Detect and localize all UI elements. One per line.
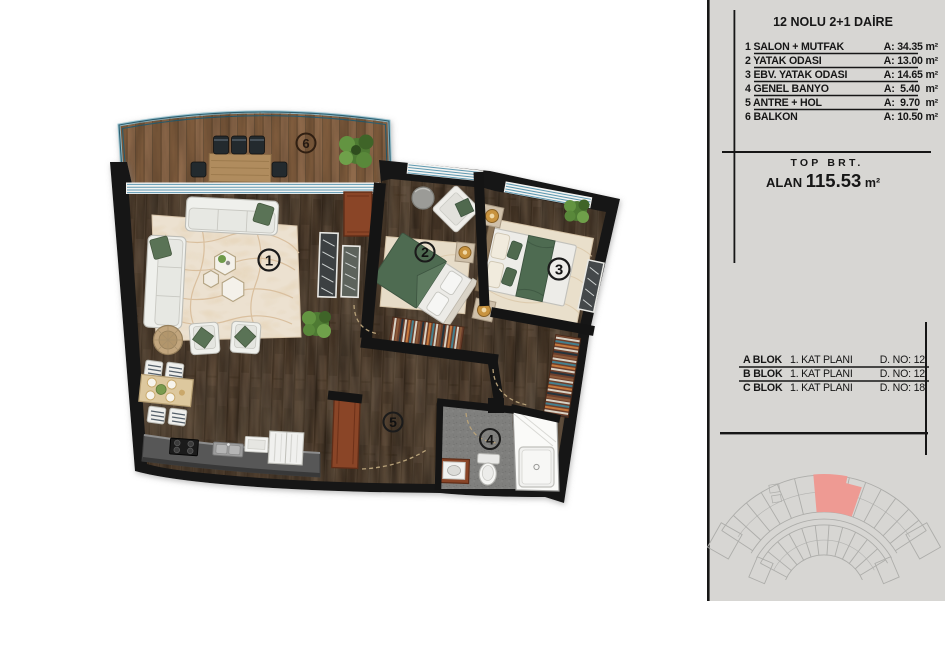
svg-text:5 ANTRE + HOL: 5 ANTRE + HOL xyxy=(745,97,823,109)
svg-text:1. KAT PLANI: 1. KAT PLANI xyxy=(790,368,853,380)
svg-text:A: 34.35 m²: A: 34.35 m² xyxy=(884,41,939,53)
svg-text:6: 6 xyxy=(302,136,309,151)
svg-text:2 YATAK ODASI: 2 YATAK ODASI xyxy=(745,55,822,67)
svg-text:A: 9.70 m²: A: 9.70 m² xyxy=(884,97,939,109)
svg-text:C BLOK: C BLOK xyxy=(743,382,783,394)
svg-text:4: 4 xyxy=(486,432,494,448)
svg-text:D. NO: 12: D. NO: 12 xyxy=(880,354,926,366)
svg-text:1. KAT PLANI: 1. KAT PLANI xyxy=(790,354,853,366)
svg-text:TOP BRT.: TOP BRT. xyxy=(790,157,863,169)
svg-text:6 BALKON: 6 BALKON xyxy=(745,111,798,123)
svg-text:3: 3 xyxy=(555,262,563,279)
svg-text:A: 10.50 m²: A: 10.50 m² xyxy=(884,111,939,123)
svg-text:2: 2 xyxy=(421,244,429,260)
svg-text:A: 13.00 m²: A: 13.00 m² xyxy=(884,55,939,67)
svg-text:A BLOK: A BLOK xyxy=(743,354,783,366)
svg-text:B BLOK: B BLOK xyxy=(743,368,783,380)
svg-text:12 NOLU 2+1 DAİRE: 12 NOLU 2+1 DAİRE xyxy=(773,14,893,29)
svg-text:4 GENEL BANYO: 4 GENEL BANYO xyxy=(745,83,829,95)
svg-text:1: 1 xyxy=(265,253,273,270)
svg-text:5: 5 xyxy=(389,414,397,430)
svg-text:1. KAT PLANI: 1. KAT PLANI xyxy=(790,382,853,394)
svg-text:1 SALON + MUTFAK: 1 SALON + MUTFAK xyxy=(745,41,844,53)
svg-text:D. NO: 12: D. NO: 12 xyxy=(880,368,926,380)
svg-text:A: 5.40 m²: A: 5.40 m² xyxy=(884,83,939,95)
svg-text:A: 14.65 m²: A: 14.65 m² xyxy=(884,69,939,81)
svg-text:3 EBV. YATAK ODASI: 3 EBV. YATAK ODASI xyxy=(745,69,847,81)
svg-text:D. NO: 18: D. NO: 18 xyxy=(880,382,926,394)
